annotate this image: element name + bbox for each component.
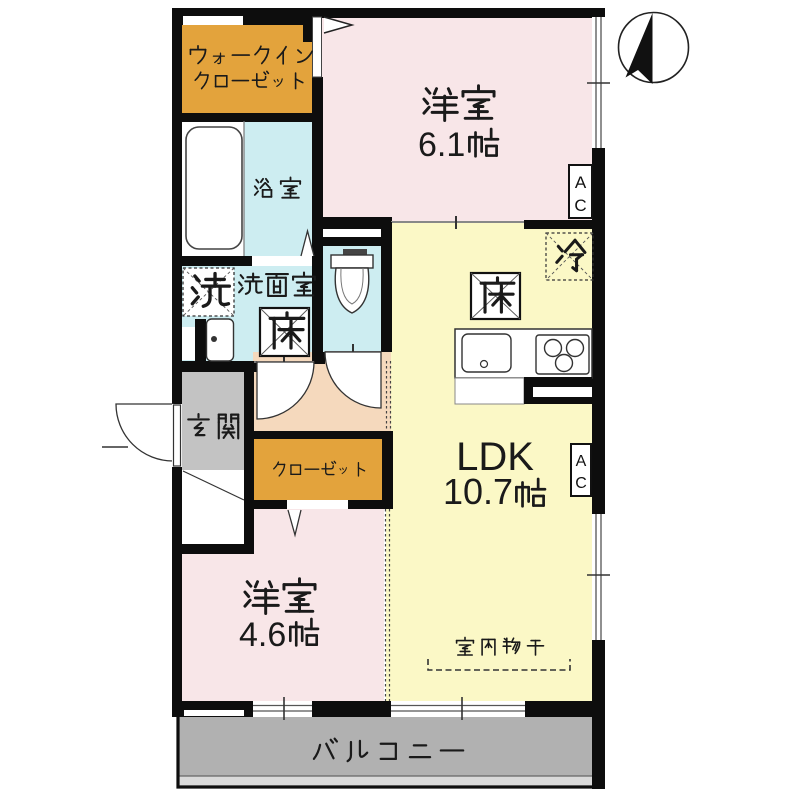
svg-text:C: C <box>575 475 587 492</box>
svg-text:10.7: 10.7 <box>443 471 513 512</box>
svg-text:A: A <box>575 173 587 192</box>
svg-text:C: C <box>574 196 586 215</box>
svg-text:4.6: 4.6 <box>239 616 286 654</box>
svg-text:6.1: 6.1 <box>418 126 465 164</box>
svg-text:A: A <box>576 453 587 470</box>
